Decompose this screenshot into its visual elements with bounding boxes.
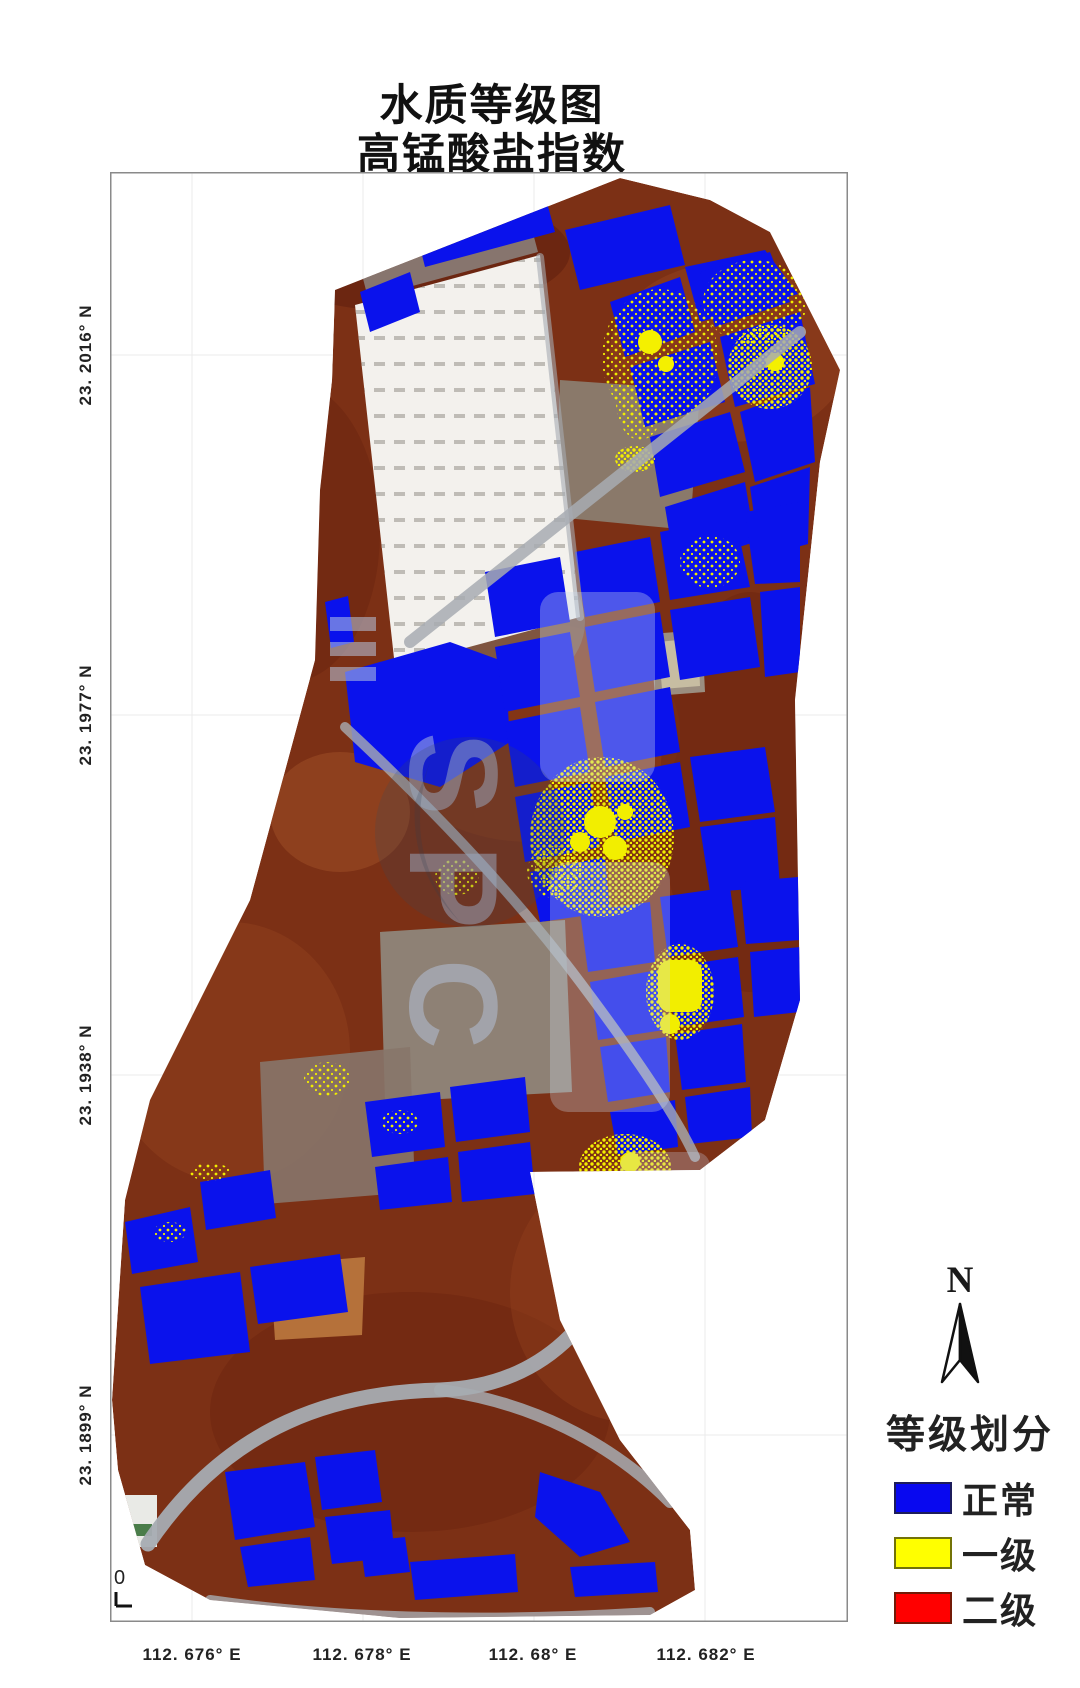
north-arrow-icon [920, 1300, 1000, 1390]
legend-row-normal: 正常 [886, 1481, 1076, 1515]
legend-row-grade1: 一级 [886, 1536, 1076, 1570]
map-title: 水质等级图 高锰酸盐指数 [112, 82, 872, 180]
legend-swatch-grade1 [894, 1537, 952, 1569]
imagery: SPC [110, 177, 848, 1618]
lon-label-2: 112. 68° E [489, 1645, 578, 1665]
lon-label-1: 112. 678° E [312, 1645, 411, 1665]
north-label: N [920, 1262, 1000, 1300]
legend-label-normal: 正常 [962, 1472, 1038, 1524]
scale-bar: 0 [114, 1567, 132, 1606]
legend-swatch-grade2 [894, 1592, 952, 1624]
legend-title: 等级划分 [886, 1404, 1076, 1460]
lat-label-1: 23. 1977° N [76, 665, 96, 766]
lat-label-2: 23. 1938° N [76, 1025, 96, 1126]
map-title-line1: 水质等级图 [112, 82, 872, 131]
legend-row-grade2: 二级 [886, 1591, 1076, 1625]
lat-label-3: 23. 1899° N [76, 1385, 96, 1486]
legend-label-grade1: 一级 [962, 1527, 1038, 1579]
legend-swatch-normal [894, 1482, 952, 1514]
legend-label-grade2: 二级 [962, 1582, 1038, 1634]
north-arrow: N [920, 1262, 1000, 1394]
svg-text:0: 0 [114, 1567, 125, 1589]
legend: 等级划分 正常 一级 二级 [886, 1404, 1076, 1625]
map-svg: SPC 0 [110, 172, 848, 1622]
map-canvas: SPC 0 [110, 172, 848, 1622]
lat-label-0: 23. 2016° N [76, 305, 96, 406]
lon-label-0: 112. 676° E [142, 1645, 241, 1665]
lon-label-3: 112. 682° E [656, 1645, 755, 1665]
